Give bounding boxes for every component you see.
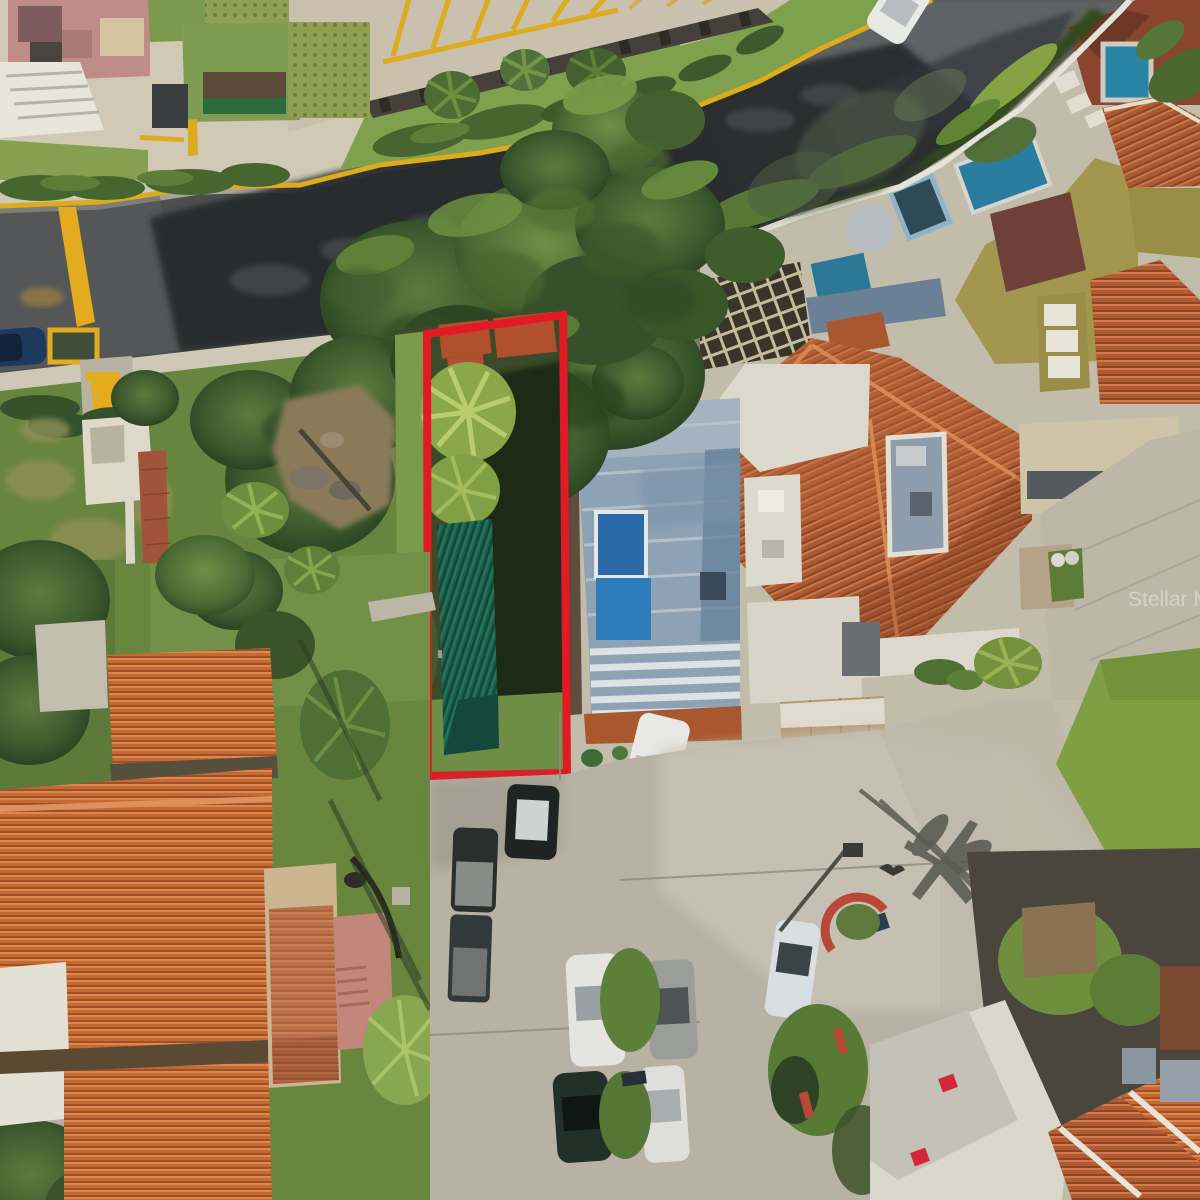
svg-text:Stellar M S: Stellar M S: [1128, 588, 1200, 611]
